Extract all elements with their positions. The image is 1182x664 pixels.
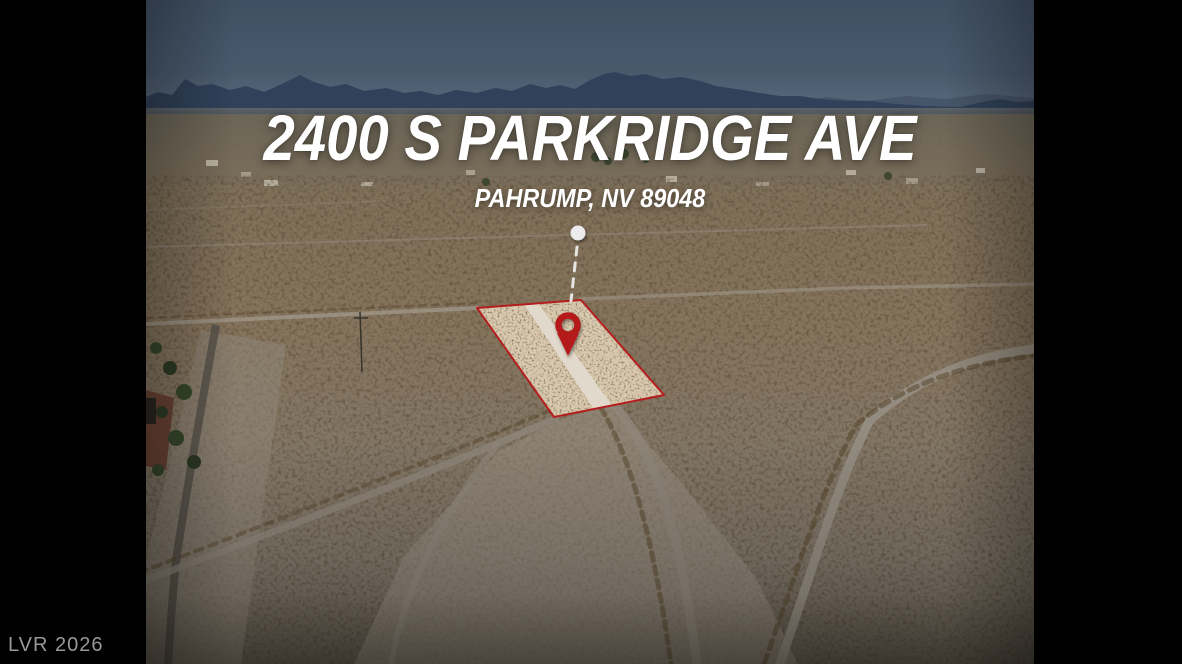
city-state-zip-subtitle: PAHRUMP, NV 89048 [190,185,989,211]
photo-dim-overlay [146,0,1034,664]
listing-photo-frame: 2400 S PARKRIDGE AVE PAHRUMP, NV 89048 L… [0,0,1182,664]
aerial-photo-art [146,0,1034,664]
aerial-photo: 2400 S PARKRIDGE AVE PAHRUMP, NV 89048 [146,0,1034,664]
watermark: LVR 2026 [8,634,103,657]
street-address-title: 2400 S PARKRIDGE AVE [199,106,980,170]
